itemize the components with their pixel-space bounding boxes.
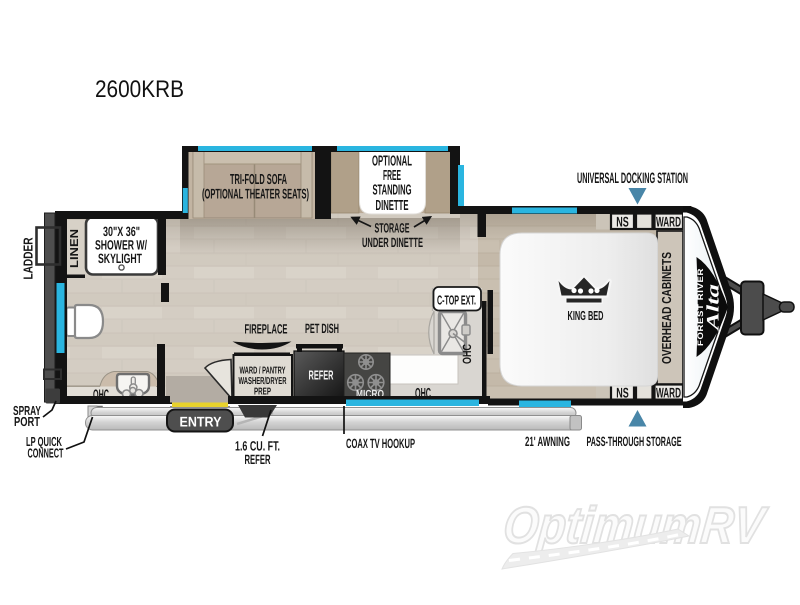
svg-text:(OPTIONAL THEATER SEATS): (OPTIONAL THEATER SEATS) — [202, 186, 309, 202]
svg-text:PORT: PORT — [14, 414, 40, 429]
svg-text:FIREPLACE: FIREPLACE — [245, 322, 288, 337]
svg-text:PET DISH: PET DISH — [305, 321, 339, 336]
svg-text:STORAGE: STORAGE — [375, 221, 410, 236]
svg-text:WARD: WARD — [656, 385, 681, 401]
svg-text:OHC: OHC — [460, 344, 474, 364]
svg-text:Alta: Alta — [703, 284, 723, 332]
svg-text:UNIVERSAL DOCKING STATION: UNIVERSAL DOCKING STATION — [577, 170, 688, 187]
svg-text:CONNECT: CONNECT — [28, 446, 64, 461]
svg-text:STANDING: STANDING — [373, 183, 412, 199]
svg-text:REFER: REFER — [245, 452, 271, 467]
svg-text:OVERHEAD CABINETS: OVERHEAD CABINETS — [659, 252, 674, 364]
svg-text:DINETTE: DINETTE — [376, 198, 409, 214]
svg-text:21' AWNING: 21' AWNING — [525, 434, 570, 449]
svg-text:COAX TV HOOKUP: COAX TV HOOKUP — [346, 436, 415, 451]
svg-text:UNDER DINETTE: UNDER DINETTE — [362, 235, 423, 250]
svg-text:WARD / PANTRY: WARD / PANTRY — [240, 366, 286, 377]
svg-text:LADDER: LADDER — [21, 237, 36, 279]
svg-text:WASHER/DRYER: WASHER/DRYER — [239, 376, 287, 387]
svg-text:PASS-THROUGH STORAGE: PASS-THROUGH STORAGE — [587, 434, 682, 449]
svg-text:SKYLIGHT: SKYLIGHT — [98, 251, 142, 266]
svg-text:PREP: PREP — [254, 387, 271, 398]
svg-text:REFER: REFER — [309, 368, 334, 383]
svg-text:WARD: WARD — [656, 214, 681, 230]
svg-text:KING BED: KING BED — [568, 308, 604, 323]
svg-text:2600KRB: 2600KRB — [95, 76, 184, 103]
svg-text:ENTRY: ENTRY — [180, 414, 223, 430]
svg-text:NS: NS — [616, 385, 629, 401]
svg-text:NS: NS — [616, 214, 629, 230]
svg-text:LINEN: LINEN — [69, 229, 81, 268]
svg-text:C-TOP EXT.: C-TOP EXT. — [437, 293, 476, 308]
